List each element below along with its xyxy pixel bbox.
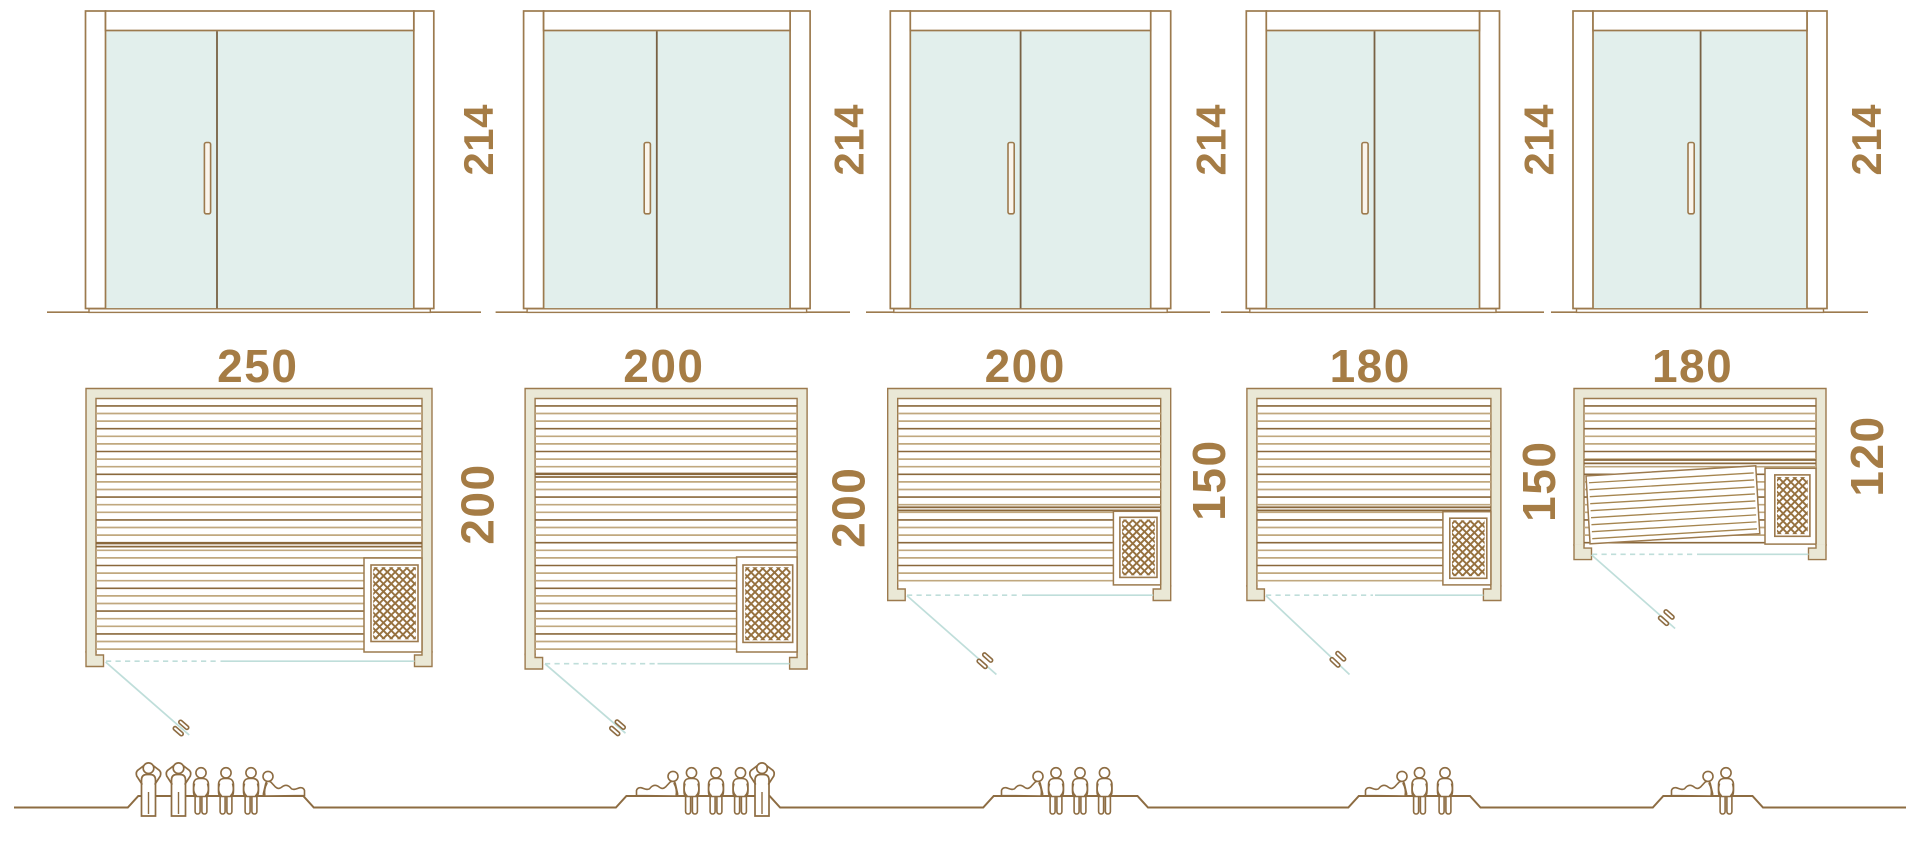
- svg-text:200: 200: [452, 463, 504, 544]
- svg-text:180: 180: [1652, 340, 1733, 392]
- svg-text:214: 214: [1516, 104, 1563, 176]
- svg-text:200: 200: [623, 340, 704, 392]
- svg-text:214: 214: [455, 104, 502, 176]
- svg-text:200: 200: [822, 467, 874, 548]
- svg-text:214: 214: [1188, 104, 1235, 176]
- svg-text:120: 120: [1841, 415, 1893, 496]
- svg-text:250: 250: [217, 340, 298, 392]
- svg-text:214: 214: [1843, 104, 1890, 176]
- svg-text:200: 200: [985, 340, 1066, 392]
- svg-text:150: 150: [1513, 441, 1565, 522]
- svg-text:150: 150: [1183, 439, 1235, 520]
- svg-text:214: 214: [826, 104, 873, 176]
- svg-text:180: 180: [1330, 340, 1411, 392]
